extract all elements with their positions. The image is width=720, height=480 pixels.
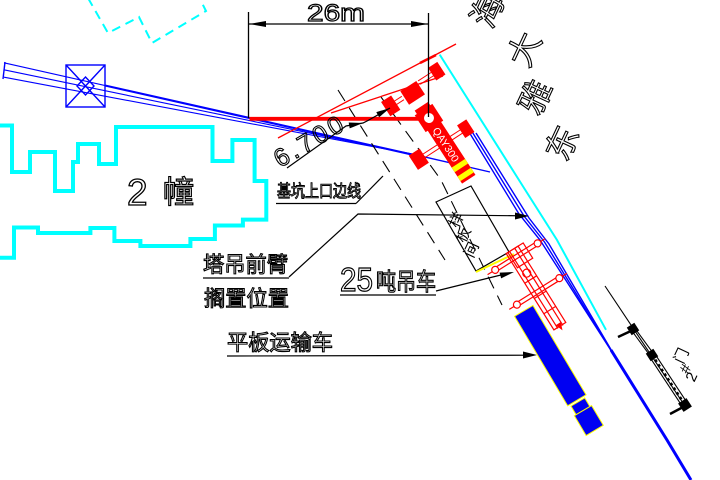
svg-text:幢: 幢 [163, 175, 194, 210]
svg-text:2: 2 [127, 172, 148, 213]
svg-text:吨吊车: 吨吊车 [376, 269, 436, 296]
svg-text:25: 25 [340, 261, 373, 298]
svg-text:搁置位置: 搁置位置 [204, 287, 289, 311]
svg-text:26m: 26m [307, 0, 365, 27]
svg-text:塔吊前臂: 塔吊前臂 [203, 253, 288, 277]
svg-text:平板运输车: 平板运输车 [227, 331, 333, 355]
svg-text:基坑上口边线: 基坑上口边线 [277, 182, 361, 201]
